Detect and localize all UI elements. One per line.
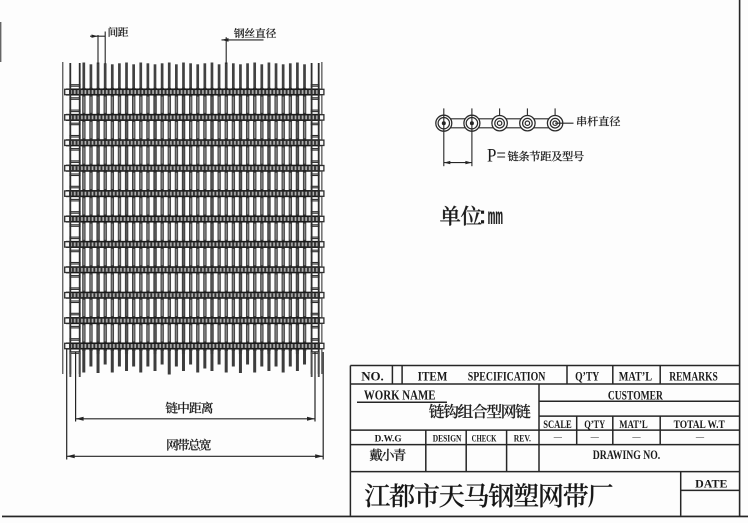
svg-text:CHECK: CHECK bbox=[472, 433, 497, 443]
svg-text:—: — bbox=[631, 432, 641, 442]
svg-text:mm: mm bbox=[488, 206, 503, 232]
svg-text:DESIGN: DESIGN bbox=[433, 433, 462, 443]
svg-text:TOTAL W.T: TOTAL W.T bbox=[674, 419, 725, 431]
svg-text:Q’TY: Q’TY bbox=[584, 419, 606, 431]
svg-text:SPECIFICATION: SPECIFICATION bbox=[468, 369, 546, 384]
svg-text:REMARKS: REMARKS bbox=[669, 369, 718, 384]
svg-text:SCALE: SCALE bbox=[543, 419, 572, 431]
svg-text:CUSTOMER: CUSTOMER bbox=[608, 387, 663, 402]
svg-text:WORK NAME: WORK NAME bbox=[364, 388, 436, 403]
svg-text:MAT’L: MAT’L bbox=[619, 419, 648, 431]
svg-text:MAT’L: MAT’L bbox=[619, 369, 653, 384]
svg-text:Q’TY: Q’TY bbox=[575, 369, 600, 384]
svg-text:D.W.G: D.W.G bbox=[375, 434, 403, 444]
svg-text:NO.: NO. bbox=[361, 369, 384, 384]
svg-text:P=: P= bbox=[487, 146, 506, 167]
svg-text:—: — bbox=[695, 432, 705, 442]
svg-text:—: — bbox=[553, 432, 563, 442]
svg-text:DATE: DATE bbox=[695, 479, 728, 491]
svg-text:ITEM: ITEM bbox=[418, 369, 448, 384]
svg-text:DRAWING NO.: DRAWING NO. bbox=[593, 447, 660, 462]
svg-text:—: — bbox=[590, 432, 600, 442]
svg-text:REV.: REV. bbox=[514, 433, 531, 443]
